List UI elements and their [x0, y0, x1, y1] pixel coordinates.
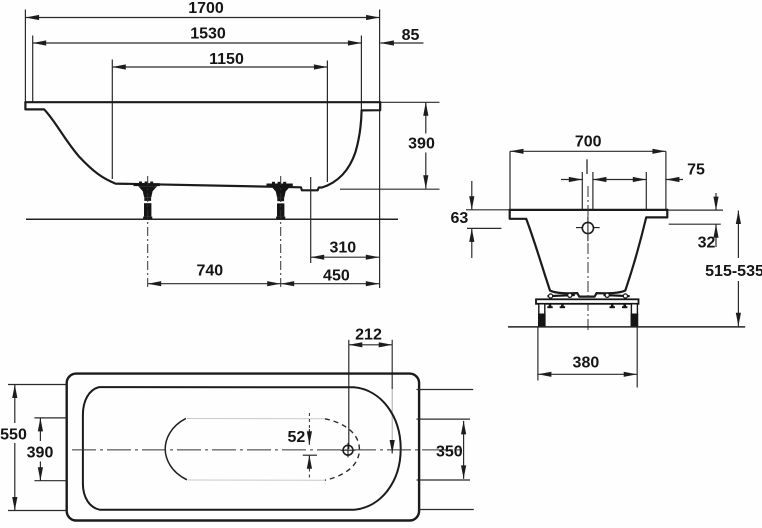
svg-text:350: 350 [436, 444, 463, 461]
svg-text:85: 85 [402, 27, 420, 44]
svg-text:390: 390 [408, 136, 435, 153]
svg-text:515-535: 515-535 [705, 263, 762, 280]
svg-text:1530: 1530 [190, 26, 226, 43]
svg-text:52: 52 [288, 429, 306, 446]
svg-text:1700: 1700 [188, 0, 224, 17]
svg-text:450: 450 [323, 268, 350, 285]
svg-text:1150: 1150 [209, 51, 244, 68]
svg-text:75: 75 [687, 162, 705, 179]
svg-text:63: 63 [451, 210, 469, 227]
svg-text:740: 740 [196, 263, 223, 280]
svg-text:700: 700 [575, 134, 602, 151]
svg-text:380: 380 [573, 355, 600, 372]
svg-text:550: 550 [0, 427, 27, 444]
svg-text:390: 390 [27, 445, 54, 462]
svg-text:32: 32 [698, 235, 716, 252]
svg-text:310: 310 [329, 240, 356, 257]
svg-text:212: 212 [355, 327, 382, 344]
